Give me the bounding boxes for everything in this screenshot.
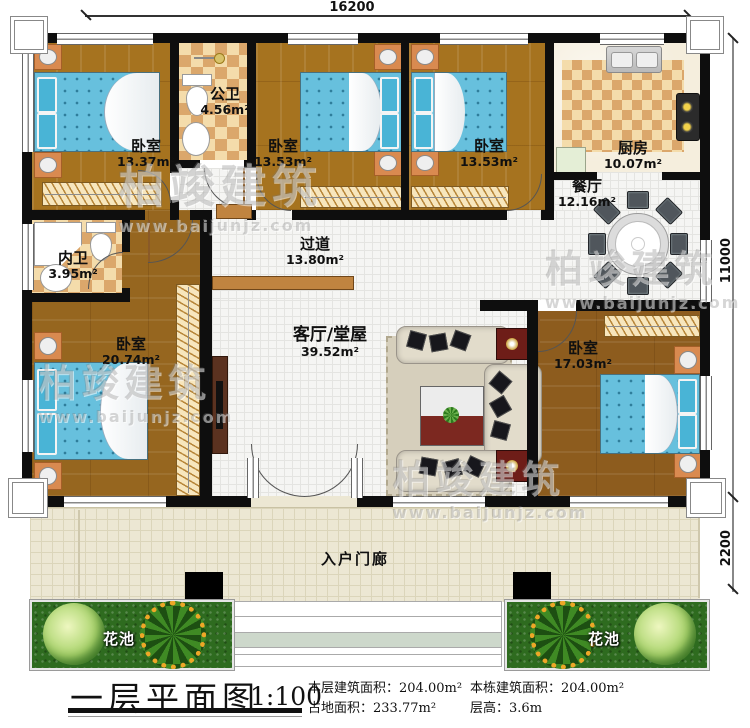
wall	[541, 210, 554, 220]
title-underline-thin	[68, 716, 302, 717]
window	[22, 52, 34, 152]
tree	[43, 603, 105, 665]
dimension-top-width: 16200	[322, 0, 382, 15]
tree	[634, 603, 696, 665]
dining-table	[607, 213, 669, 275]
palm-plant	[530, 601, 596, 669]
wall	[170, 200, 179, 220]
corner-box	[686, 478, 726, 518]
window	[288, 33, 358, 45]
stat-land-area: 占地面积：233.77m²	[308, 699, 462, 719]
dimension-porch-depth: 2200	[719, 530, 734, 566]
dining-chair	[588, 233, 606, 255]
palm-plant	[140, 601, 206, 669]
plant	[443, 407, 459, 423]
towel-bar	[194, 57, 216, 59]
wall	[122, 220, 130, 252]
wardrobe	[604, 315, 700, 337]
dining-chair	[627, 277, 649, 295]
sink	[182, 122, 210, 156]
stats-column-2: 本栋建筑面积：204.00m² 层高：3.6m	[470, 679, 624, 719]
flower-bed-label-left: 花池	[103, 628, 135, 649]
door-leaf	[243, 168, 245, 208]
nightstand	[34, 332, 62, 360]
room-label-public-bathroom: 公卫4.56m²	[193, 86, 257, 116]
room-label-master-bedroom: 卧室20.74m²	[91, 336, 171, 366]
window	[700, 376, 712, 450]
wall	[480, 300, 538, 311]
nightstand	[411, 150, 439, 176]
corner-box	[686, 16, 724, 54]
towel-bar-knob	[214, 53, 225, 64]
wall	[662, 172, 710, 180]
dimension-right-height: 11000	[719, 238, 734, 283]
wall	[190, 210, 212, 220]
entry-steps	[232, 601, 502, 667]
entry-door-frame	[247, 458, 259, 498]
room-label-bedroom-top-mid: 卧室13.53m²	[243, 138, 323, 168]
wall	[401, 43, 409, 210]
sofa-pillow	[429, 333, 449, 353]
nightstand	[674, 450, 702, 478]
fridge	[556, 147, 586, 174]
room-label-dining: 餐厅12.16m²	[547, 178, 627, 208]
hallway-cabinet	[216, 204, 252, 219]
nightstand	[34, 152, 62, 178]
flower-bed-label-right: 花池	[588, 628, 620, 649]
sofa-pillow	[419, 457, 439, 477]
room-label-bedroom-top-right: 卧室13.53m²	[449, 138, 529, 168]
stat-floor-area: 本层建筑面积：204.00m²	[308, 679, 462, 699]
nightstand	[411, 44, 439, 70]
wardrobe	[411, 186, 509, 208]
nightstand	[374, 150, 402, 176]
toilet-tank	[182, 74, 212, 86]
room-label-bedroom-top-left: 卧室13.37m²	[106, 138, 186, 168]
dining-chair	[670, 233, 688, 255]
door-leaf	[148, 220, 150, 262]
side-table	[496, 328, 528, 360]
side-table	[496, 450, 528, 482]
window	[440, 33, 528, 45]
room-label-kitchen: 厨房10.07m²	[593, 140, 673, 170]
tv-cabinet	[212, 356, 228, 454]
window	[57, 33, 153, 45]
room-label-inner-bathroom: 内卫3.95m²	[33, 250, 113, 280]
wall	[200, 210, 212, 497]
wall	[22, 293, 130, 302]
nightstand	[674, 346, 702, 374]
wall	[22, 210, 145, 220]
bed-bedroom-right	[600, 374, 700, 454]
stat-floor-height: 层高：3.6m	[470, 699, 624, 719]
title-underline	[68, 708, 302, 713]
dimension-line-top	[85, 15, 690, 17]
bed-master	[34, 362, 148, 460]
corner-box	[10, 16, 48, 54]
kitchen-sink	[606, 46, 662, 73]
nightstand	[374, 44, 402, 70]
floor-plan-page: 卧室13.37m² 公卫4.56m² 卧室13.53m² 卧室13.53m² 厨…	[0, 0, 750, 728]
wall	[292, 210, 507, 220]
wardrobe	[300, 186, 402, 208]
entry-door-frame	[351, 458, 363, 498]
room-label-hallway: 过道13.80m²	[275, 236, 355, 266]
dining-chair	[627, 191, 649, 209]
stats-column-1: 本层建筑面积：204.00m² 占地面积：233.77m²	[308, 679, 462, 719]
door-leaf	[538, 311, 540, 351]
window	[600, 33, 664, 45]
hallway-cabinet-long	[212, 276, 354, 290]
room-label-bedroom-right: 卧室17.03m²	[543, 340, 623, 370]
corner-box	[8, 478, 48, 518]
room-label-living-room: 客厅/堂屋39.52m²	[265, 326, 395, 358]
wall	[527, 300, 538, 497]
closet	[176, 284, 200, 496]
stove	[676, 93, 700, 141]
window	[700, 240, 712, 302]
wall	[576, 300, 710, 311]
entry-opening	[251, 496, 357, 507]
window	[22, 380, 34, 452]
toilet-tank	[86, 222, 116, 233]
dimension-line-right	[732, 38, 734, 592]
room-label-entry-porch: 入户门廊	[300, 551, 410, 568]
stat-building-area: 本栋建筑面积：204.00m²	[470, 679, 624, 699]
